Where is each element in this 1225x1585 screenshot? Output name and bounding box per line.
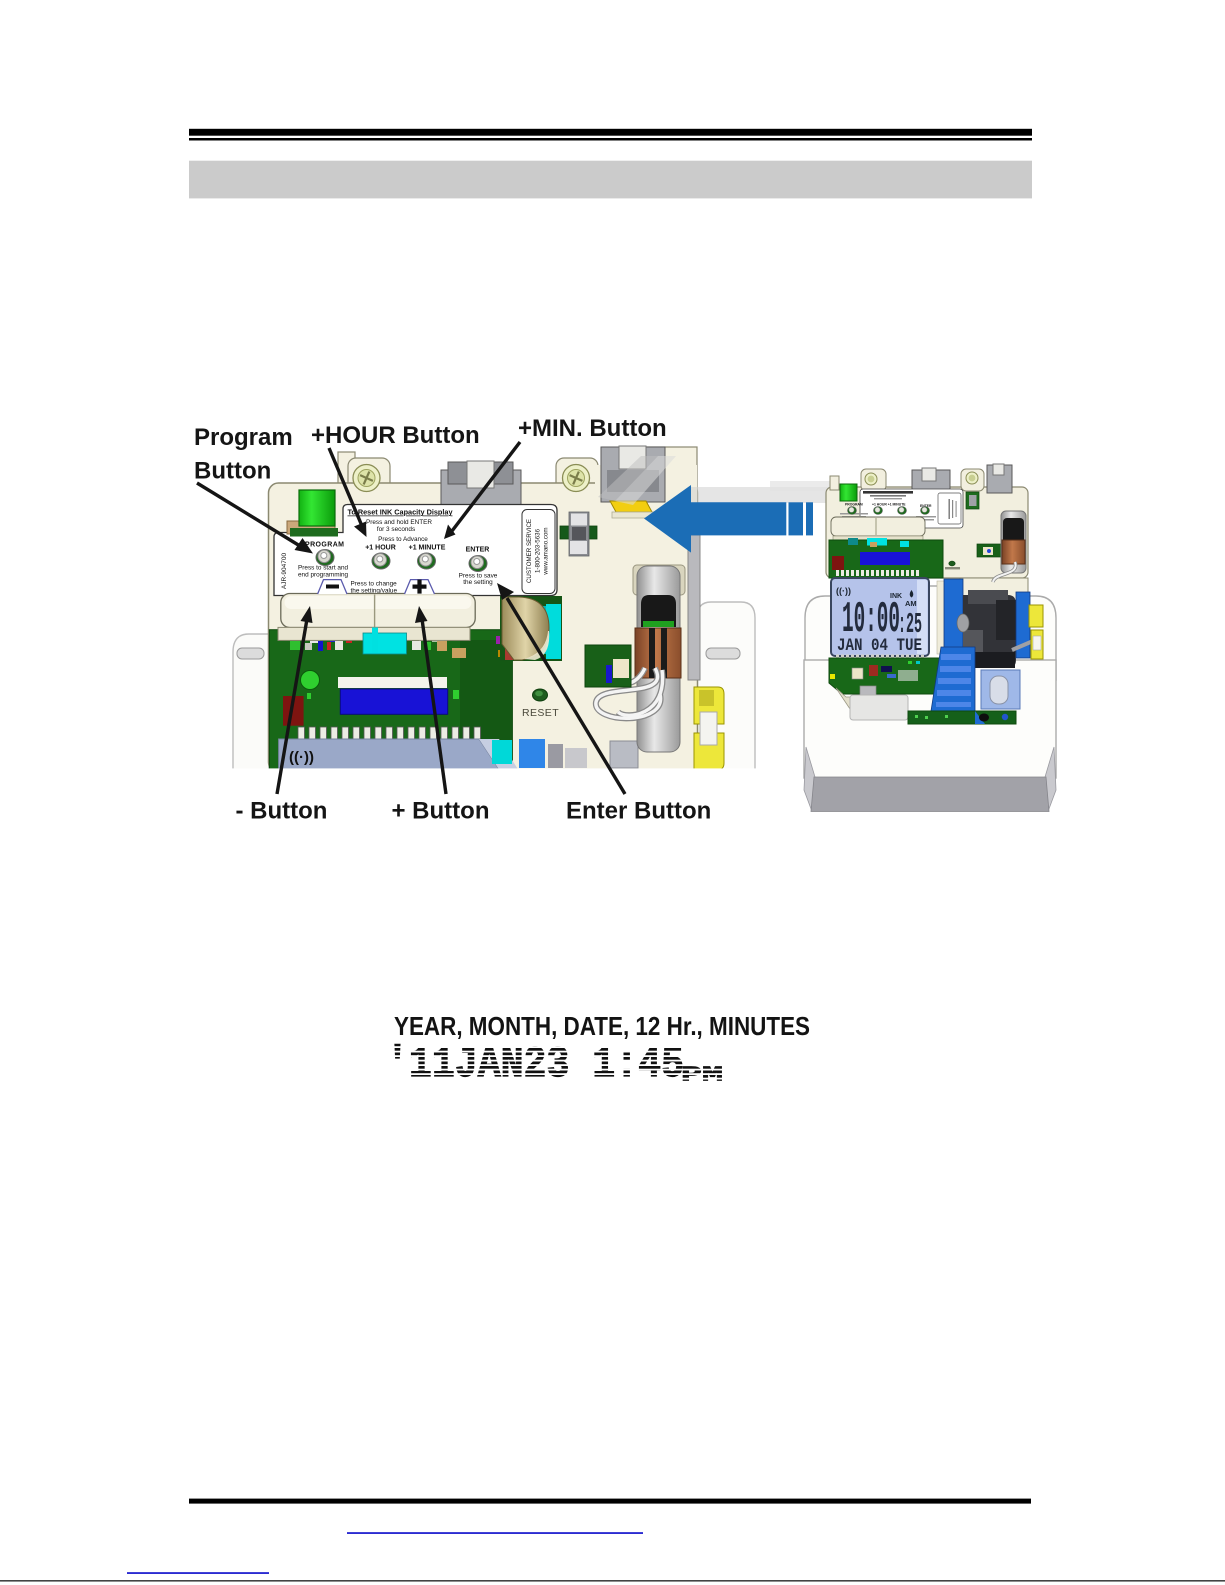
svg-text:+1 HOUR: +1 HOUR <box>365 545 396 552</box>
svg-text:((·)): ((·)) <box>289 749 314 766</box>
svg-text:PROGRAM: PROGRAM <box>845 503 863 507</box>
svg-text:end programming: end programming <box>298 572 349 579</box>
svg-text:for 3 seconds: for 3 seconds <box>377 526 415 533</box>
svg-text:YEAR, MONTH, DATE, 12 Hr., MIN: YEAR, MONTH, DATE, 12 Hr., MINUTES <box>394 1011 810 1041</box>
svg-text:AM: AM <box>905 599 917 608</box>
svg-text:PM: PM <box>681 1065 723 1088</box>
svg-text:www.amano.com: www.amano.com <box>543 527 550 575</box>
svg-text:+HOUR Button: +HOUR Button <box>311 422 480 449</box>
svg-text:AJR-904700: AJR-904700 <box>281 553 288 590</box>
svg-text:RESET: RESET <box>522 707 559 719</box>
svg-text:the setting: the setting <box>463 579 493 586</box>
svg-text:JAN 04 TUE: JAN 04 TUE <box>837 636 922 656</box>
svg-text:+1 MINUTE: +1 MINUTE <box>409 545 446 552</box>
svg-text:CUSTOMER SERVICE: CUSTOMER SERVICE <box>526 519 533 583</box>
svg-text:+MIN. Button: +MIN. Button <box>518 415 667 442</box>
svg-text:To Reset INK Capacity Display: To Reset INK Capacity Display <box>348 508 454 517</box>
svg-text:PROGRAM: PROGRAM <box>305 542 344 549</box>
svg-text:1-800-203-5636: 1-800-203-5636 <box>535 528 542 573</box>
svg-text:- Button: - Button <box>236 798 328 825</box>
svg-text:Enter Button: Enter Button <box>566 798 711 825</box>
svg-text:Program: Program <box>194 424 293 451</box>
svg-text:+ Button: + Button <box>392 798 490 825</box>
svg-text:ENTER: ENTER <box>466 547 490 554</box>
svg-text:Press to Advance: Press to Advance <box>378 536 428 543</box>
svg-text:Press and hold ENTER: Press and hold ENTER <box>366 519 432 526</box>
svg-text:Button: Button <box>194 458 271 485</box>
svg-text:Press to change: Press to change <box>351 581 398 588</box>
svg-text:+1 HOUR +1 MINUTE: +1 HOUR +1 MINUTE <box>872 503 906 507</box>
